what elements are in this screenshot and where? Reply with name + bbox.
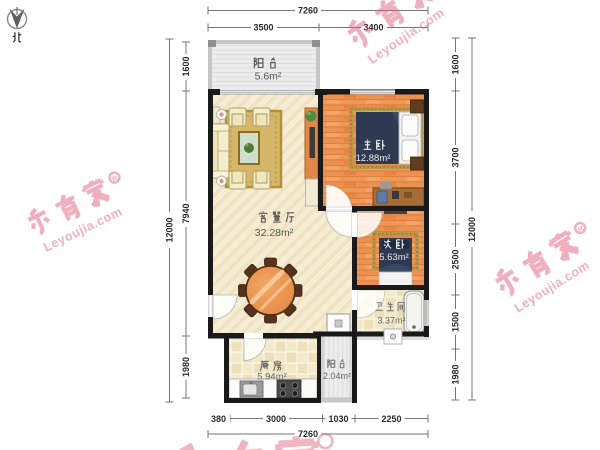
svg-text:12000: 12000: [467, 217, 477, 242]
svg-text:2.04m²: 2.04m²: [323, 371, 351, 381]
svg-text:1600: 1600: [451, 54, 461, 74]
svg-text:5.94m²: 5.94m²: [257, 372, 287, 383]
svg-text:7260: 7260: [298, 429, 318, 439]
svg-text:7260: 7260: [298, 6, 318, 16]
svg-text:1030: 1030: [328, 414, 348, 424]
svg-text:3.37m²: 3.37m²: [377, 316, 405, 326]
svg-text:1500: 1500: [451, 312, 461, 332]
svg-text:2250: 2250: [381, 414, 401, 424]
svg-text:3500: 3500: [253, 23, 273, 33]
svg-text:12.88m²: 12.88m²: [356, 153, 391, 164]
svg-text:5.6m²: 5.6m²: [255, 71, 282, 83]
svg-text:3700: 3700: [451, 147, 461, 167]
svg-text:3000: 3000: [266, 414, 286, 424]
svg-text:12000: 12000: [165, 217, 175, 242]
svg-text:1980: 1980: [181, 357, 191, 377]
svg-text:1600: 1600: [181, 56, 191, 76]
svg-text:380: 380: [211, 414, 226, 424]
svg-text:2500: 2500: [451, 249, 461, 269]
svg-text:7940: 7940: [181, 203, 191, 223]
svg-text:32.28m²: 32.28m²: [255, 227, 294, 239]
svg-text:1980: 1980: [451, 364, 461, 384]
svg-text:5.63m²: 5.63m²: [379, 252, 409, 263]
